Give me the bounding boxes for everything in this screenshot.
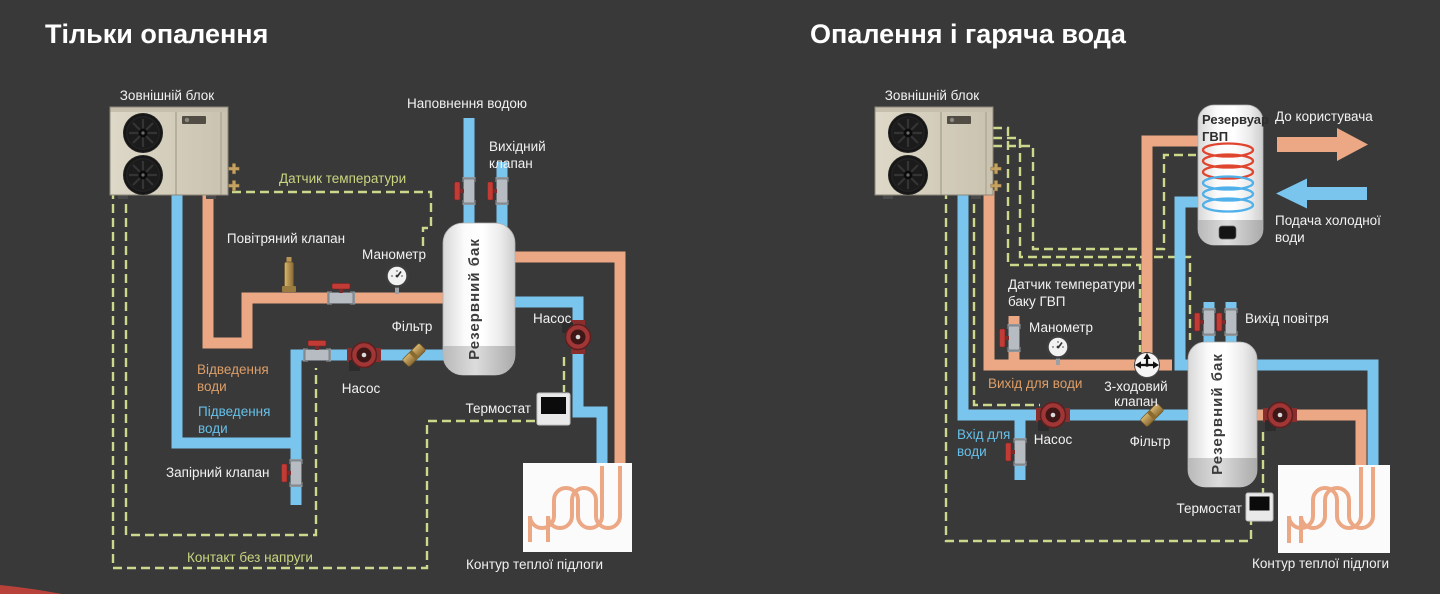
label-water-return: води bbox=[197, 379, 227, 394]
label-water-outlet: Вихід для води bbox=[988, 376, 1082, 391]
page-title-left: Тільки опалення bbox=[45, 19, 268, 49]
label-thermostat: Термостат bbox=[1177, 501, 1242, 516]
flow-arrow-cold bbox=[1276, 179, 1367, 209]
dhw-tank-label: Резервуар bbox=[1202, 112, 1269, 127]
pump-icon bbox=[1036, 403, 1070, 432]
label-dry-contact: Контакт без напруги bbox=[187, 550, 313, 565]
label-floor-circuit: Контур теплої підлоги bbox=[466, 557, 603, 572]
cold-pipe-to-floor bbox=[503, 302, 602, 467]
outdoor-unit bbox=[875, 107, 993, 199]
buffer-tank: Резервний бак bbox=[1188, 342, 1257, 487]
label-three-way-valve: 3-ходовий bbox=[1104, 379, 1167, 394]
label-filter: Фільтр bbox=[1130, 434, 1171, 449]
ball-valve-icon bbox=[1000, 324, 1021, 352]
label-air-valve: Повітряний клапан bbox=[227, 231, 345, 246]
left-diagram: Тільки опалення Резервний бак bbox=[45, 19, 632, 572]
label-water-fill: Наповнення водою bbox=[407, 96, 527, 111]
dhw-display bbox=[1219, 226, 1236, 239]
label-manometer: Манометр bbox=[362, 247, 426, 262]
dhw-tank: Резервуар ГВП bbox=[1198, 105, 1269, 245]
label-cold-water: Подача холодної bbox=[1275, 213, 1381, 228]
label-water-inlet: Вхід для bbox=[957, 427, 1010, 442]
label-three-way-valve: клапан bbox=[1114, 394, 1158, 409]
right-diagram: Опалення і гаряча вода bbox=[810, 19, 1390, 571]
floor-circuit bbox=[1278, 465, 1390, 553]
shutoff-valve-icon bbox=[282, 459, 303, 487]
label-dhw-sensor: баку ГВП bbox=[1008, 294, 1066, 309]
buffer-tank-label: Резервний бак bbox=[1209, 353, 1226, 475]
label-water-return: Відведення bbox=[197, 362, 269, 377]
label-outlet-valve: клапан bbox=[489, 156, 533, 171]
label-water-supply: води bbox=[198, 421, 228, 436]
service-valve-icon bbox=[229, 181, 239, 191]
label-thermostat: Термостат bbox=[466, 401, 531, 416]
page-title-right: Опалення і гаряча вода bbox=[810, 19, 1127, 49]
dhw-sensor-line bbox=[993, 146, 1196, 249]
ball-valve-icon bbox=[327, 284, 355, 305]
label-pump: Насос bbox=[1034, 432, 1073, 447]
label-to-user: До користувача bbox=[1275, 109, 1373, 124]
pump-icon bbox=[347, 343, 381, 372]
label-water-inlet: води bbox=[957, 444, 987, 459]
schematic-svg: Тільки опалення Резервний бак bbox=[0, 0, 1440, 594]
buffer-tank-label: Резервний бак bbox=[466, 238, 483, 360]
inlet-valve-icon bbox=[1006, 438, 1027, 466]
cold-pipe-supply bbox=[296, 355, 455, 505]
label-water-supply: Підведення bbox=[198, 404, 270, 419]
flow-arrow-hot bbox=[1277, 128, 1368, 161]
buffer-tank: Резервний бак bbox=[443, 223, 515, 375]
label-outdoor-unit: Зовнішній блок bbox=[120, 88, 215, 103]
outlet-valve-icon bbox=[488, 177, 509, 205]
service-valve-icon bbox=[229, 164, 239, 174]
label-manometer: Манометр bbox=[1029, 320, 1093, 335]
label-pump-floor: Насос bbox=[533, 311, 572, 326]
label-floor-circuit: Контур теплої підлоги bbox=[1252, 556, 1389, 571]
floor-circuit bbox=[523, 463, 632, 552]
buffer-sensor-line bbox=[993, 138, 1190, 340]
pump-icon bbox=[1263, 403, 1297, 432]
diagram-canvas: Тільки опалення Резервний бак bbox=[0, 0, 1440, 594]
three-way-valve-icon bbox=[1135, 353, 1160, 378]
fill-valve-icon bbox=[455, 177, 476, 205]
air-valve-icon bbox=[1217, 308, 1238, 336]
label-shutoff-valve: Запірний клапан bbox=[166, 465, 270, 480]
thermostat bbox=[1246, 493, 1273, 521]
label-cold-water: води bbox=[1275, 230, 1305, 245]
label-pump: Насос bbox=[342, 381, 381, 396]
label-air-outlet: Вихід повітря bbox=[1245, 311, 1329, 326]
label-temp-sensor: Датчик температури bbox=[279, 171, 406, 186]
heat-exchanger-coil bbox=[1203, 144, 1253, 212]
outdoor-unit bbox=[110, 107, 228, 199]
dhw-tank-label: ГВП bbox=[1202, 129, 1228, 144]
air-valve-icon bbox=[1195, 308, 1216, 336]
manometer-icon bbox=[387, 266, 408, 295]
thermostat bbox=[537, 393, 570, 425]
corner-graphic bbox=[0, 585, 62, 594]
label-outdoor-unit: Зовнішній блок bbox=[885, 88, 980, 103]
air-valve-icon bbox=[282, 257, 296, 292]
label-dhw-sensor: Датчик температури bbox=[1008, 277, 1135, 292]
label-filter: Фільтр bbox=[392, 319, 433, 334]
label-outlet-valve: Вихідний bbox=[489, 139, 546, 154]
ball-valve-icon bbox=[303, 341, 331, 362]
